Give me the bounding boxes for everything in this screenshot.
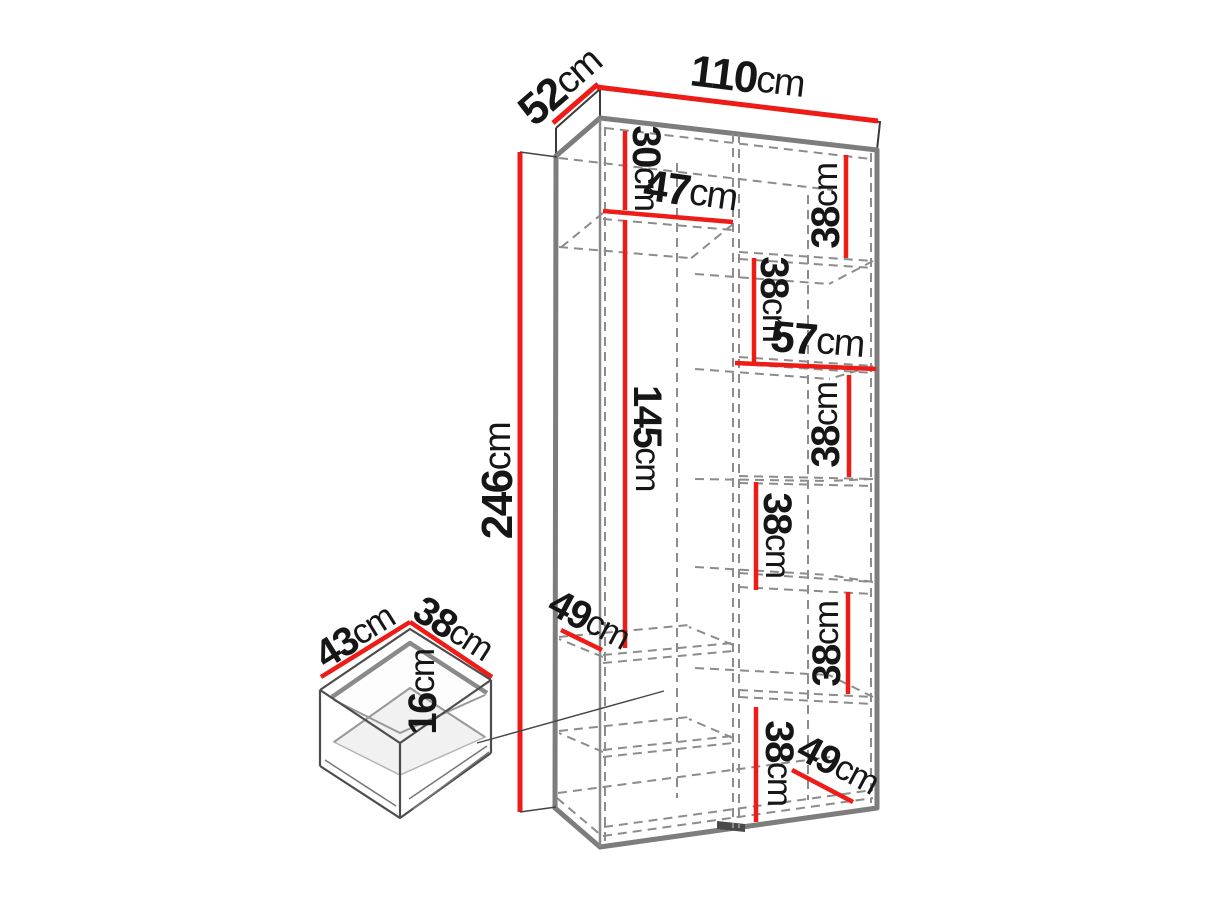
label-shelf-gap-38cm: 38cm — [805, 601, 849, 686]
shelf-line — [603, 743, 733, 757]
shelf-depth-line — [689, 224, 733, 260]
diagram-canvas: 52cm 110cm 246cm 30cm 47cm 38cm 38cm 57c… — [0, 0, 1214, 911]
label-right-width-57cm: 57cm — [768, 312, 866, 369]
label-hanging-height-145cm: 145cm — [625, 385, 669, 491]
label-shelf-gap-38cm: 38cm — [804, 382, 848, 467]
extension-line-246-top — [520, 152, 557, 157]
carcass-bottom-edges — [555, 808, 877, 847]
shelf-line — [739, 476, 873, 479]
shelf-depth-line — [829, 261, 873, 284]
wardrobe-dimension-diagram: 52cm 110cm 246cm 30cm 47cm 38cm 38cm 57c… — [0, 0, 1214, 911]
label-drawer-height-16cm: 16cm — [401, 649, 445, 734]
shelf-line — [739, 697, 873, 704]
shelf-depth-line — [559, 213, 603, 249]
shelf-back-line — [695, 479, 829, 481]
shelf-line — [603, 736, 733, 750]
shelf-line — [739, 587, 873, 594]
shelf-depth-line — [689, 719, 733, 738]
shelf-depth-line — [559, 733, 603, 752]
label-shelf-gap-38cm: 38cm — [804, 163, 848, 248]
shelf-depth-line — [829, 479, 873, 481]
label-shelf-gap-38cm: 38cm — [755, 492, 799, 577]
label-left-width-47cm: 47cm — [641, 160, 741, 222]
shelf-line — [739, 483, 873, 486]
shelf-depth-line — [689, 627, 733, 645]
drawer-leader-line — [477, 691, 664, 743]
carcass-left-edge — [555, 156, 556, 808]
shelf-back-line — [559, 717, 689, 731]
label-height-246cm: 246cm — [473, 423, 522, 540]
extension-line-246-bottom — [520, 807, 556, 812]
shelf-line — [739, 690, 873, 697]
